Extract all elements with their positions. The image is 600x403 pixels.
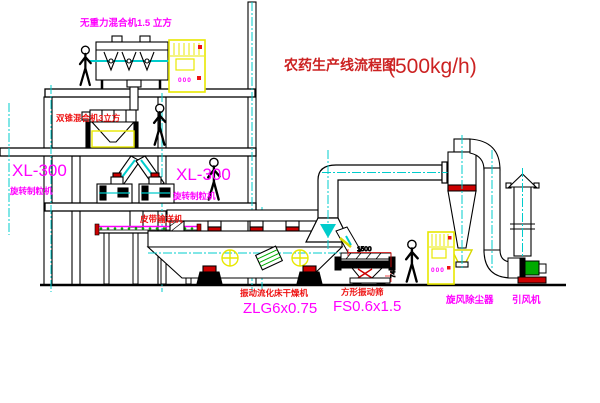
vibrating-sieve: 1500 745 bbox=[335, 227, 397, 286]
control-cabinet-1: 000 bbox=[169, 40, 205, 92]
page-title-capacity: (500kg/h) bbox=[388, 55, 477, 78]
label-dryer-model: ZLG6x0.75 bbox=[243, 300, 317, 317]
label-double-cone-mixer: 双锥混合机3立方 bbox=[56, 113, 121, 123]
worker-ground bbox=[406, 240, 417, 281]
label-granulator-left-model: XL-300 bbox=[12, 161, 67, 180]
label-gravity-mixer: 无重力混合机1.5 立方 bbox=[79, 17, 172, 29]
label-granulator-right-name: 旋转制粒机 bbox=[172, 191, 216, 201]
label-belt-conveyor: 皮带输送机 bbox=[139, 214, 183, 224]
worker-roof bbox=[80, 46, 91, 85]
label-dryer-name: 振动流化床干燥机 bbox=[240, 288, 309, 298]
diagram-canvas: 000 bbox=[0, 0, 600, 403]
label-granulator-left-name: 旋转制粒机 bbox=[9, 186, 53, 196]
label-sieve-name: 方形振动筛 bbox=[341, 287, 384, 297]
cabinet-2-display: 000 bbox=[431, 267, 445, 274]
drawing-page: 000 bbox=[0, 0, 600, 403]
induced-draft-fan bbox=[508, 258, 546, 283]
cabinet-1-display: 000 bbox=[178, 77, 192, 84]
dimension-745: 745 bbox=[390, 267, 397, 278]
label-cyclone: 旋风除尘器 bbox=[445, 294, 494, 306]
control-cabinet-2: 000 bbox=[428, 232, 454, 284]
granulator-right bbox=[139, 173, 174, 203]
page-title: 农药生产线流程图 bbox=[283, 57, 396, 73]
label-fan: 引风机 bbox=[512, 294, 541, 306]
label-sieve-model: FS0.6x1.5 bbox=[333, 298, 401, 315]
label-granulator-right-model: XL-300 bbox=[176, 165, 231, 184]
dimension-1500: 1500 bbox=[357, 246, 372, 253]
